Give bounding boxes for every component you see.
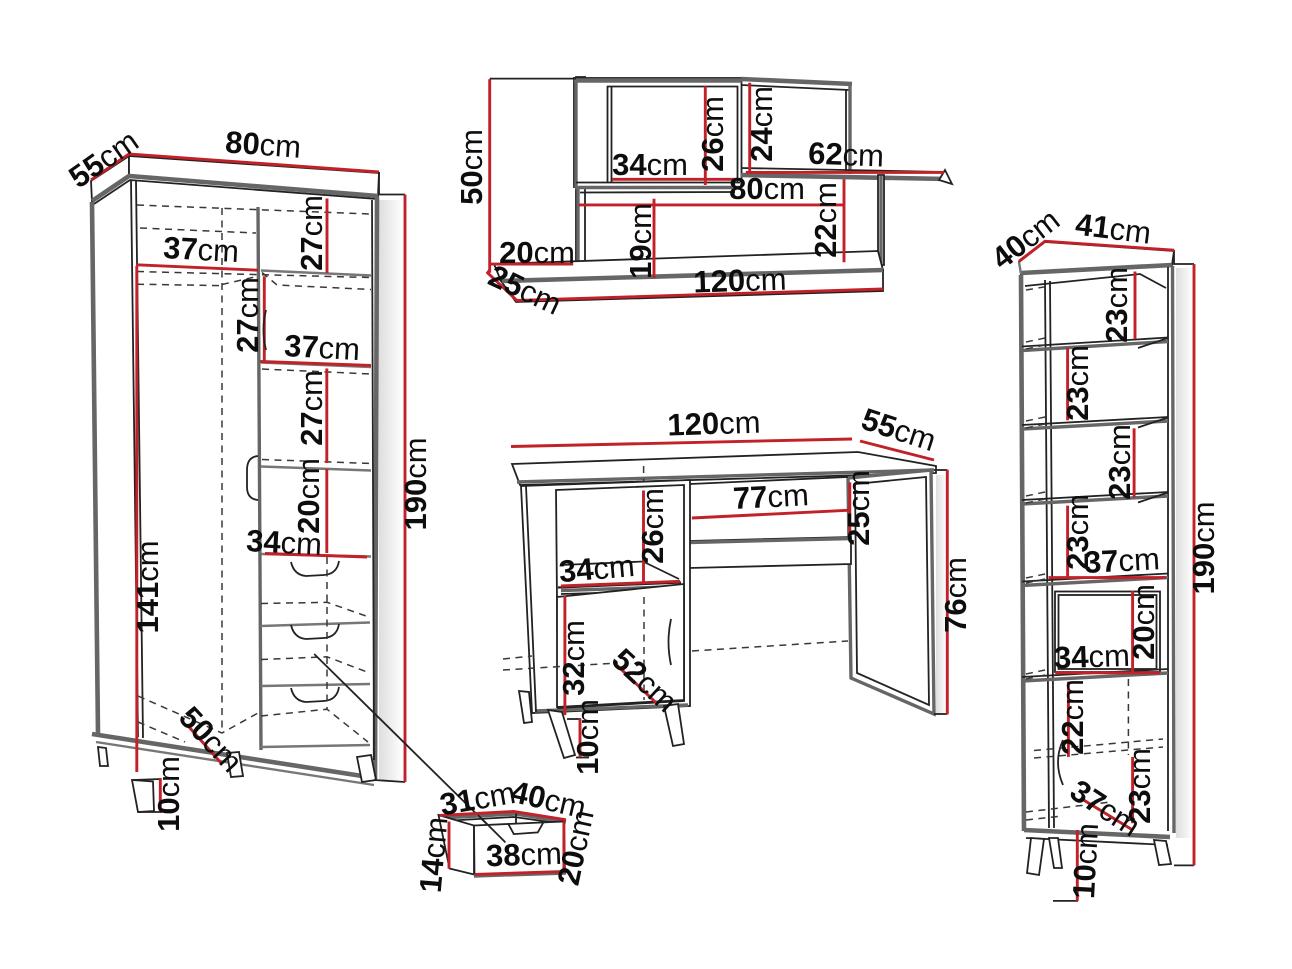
svg-text:37cm: 37cm [162, 230, 240, 269]
svg-text:23cm: 23cm [1099, 267, 1134, 343]
svg-text:80cm: 80cm [729, 171, 805, 206]
svg-text:141cm: 141cm [130, 540, 165, 633]
svg-text:27cm: 27cm [294, 370, 329, 446]
svg-text:20cm: 20cm [1126, 584, 1161, 660]
svg-text:25cm: 25cm [841, 470, 876, 546]
svg-text:37cm: 37cm [283, 328, 361, 367]
svg-text:27cm: 27cm [230, 277, 265, 353]
svg-text:22cm: 22cm [808, 182, 843, 258]
svg-text:23cm: 23cm [1102, 424, 1137, 500]
svg-text:34cm: 34cm [1053, 638, 1130, 676]
svg-text:24cm: 24cm [744, 86, 779, 162]
svg-text:23cm: 23cm [1060, 345, 1095, 421]
svg-text:27cm: 27cm [294, 195, 329, 271]
svg-text:190cm: 190cm [398, 437, 433, 530]
svg-text:62cm: 62cm [808, 136, 885, 174]
svg-text:26cm: 26cm [695, 96, 730, 172]
svg-text:120cm: 120cm [693, 262, 787, 300]
svg-text:50cm: 50cm [454, 129, 489, 205]
svg-text:34cm: 34cm [245, 523, 323, 562]
svg-text:34cm: 34cm [612, 147, 688, 182]
svg-text:38cm: 38cm [485, 836, 562, 874]
svg-text:10cm: 10cm [1066, 822, 1105, 900]
svg-text:34cm: 34cm [558, 548, 637, 589]
svg-text:20cm: 20cm [291, 458, 326, 534]
svg-text:32cm: 32cm [556, 620, 591, 696]
svg-text:10cm: 10cm [151, 756, 186, 832]
svg-text:10cm: 10cm [570, 699, 605, 775]
svg-text:77cm: 77cm [732, 477, 810, 516]
svg-text:37cm: 37cm [1083, 541, 1161, 580]
svg-text:19cm: 19cm [623, 203, 658, 279]
svg-text:80cm: 80cm [224, 125, 302, 165]
svg-text:190cm: 190cm [1186, 501, 1221, 594]
svg-text:120cm: 120cm [667, 405, 761, 443]
svg-text:14cm: 14cm [413, 816, 454, 895]
svg-text:76cm: 76cm [938, 557, 973, 633]
svg-text:22cm: 22cm [1055, 679, 1090, 755]
svg-text:26cm: 26cm [635, 488, 670, 564]
